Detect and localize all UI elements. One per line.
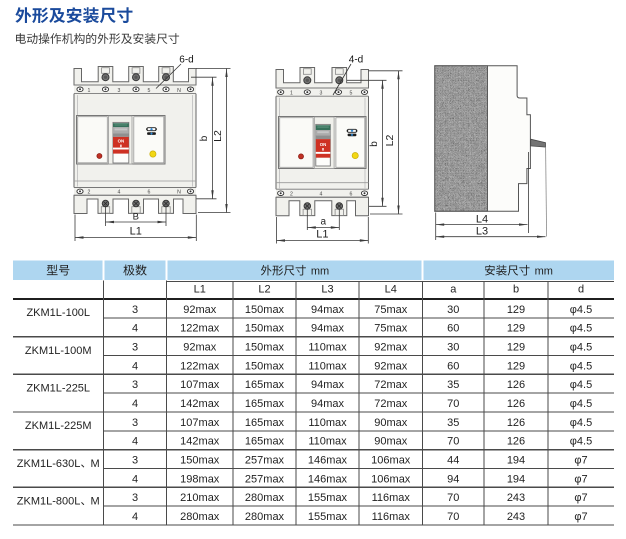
svg-text:90max: 90max <box>374 417 408 429</box>
svg-text:M: M <box>91 496 100 508</box>
svg-text:φ7: φ7 <box>574 473 587 485</box>
svg-text:1: 1 <box>88 88 91 94</box>
svg-text:75max: 75max <box>374 323 408 335</box>
svg-text:122max: 122max <box>180 360 220 372</box>
svg-text:129: 129 <box>507 304 525 316</box>
svg-text:150max: 150max <box>245 304 285 316</box>
svg-text:142max: 142max <box>180 436 220 448</box>
svg-text:70: 70 <box>447 398 459 410</box>
svg-text:94: 94 <box>447 473 459 485</box>
svg-text:L1: L1 <box>130 225 142 237</box>
svg-text:4: 4 <box>132 511 138 523</box>
svg-text:L4: L4 <box>385 283 397 295</box>
svg-text:φ7: φ7 <box>574 455 587 467</box>
svg-text:72max: 72max <box>374 379 408 391</box>
svg-text:94max: 94max <box>311 304 345 316</box>
svg-text:φ4.5: φ4.5 <box>570 379 592 391</box>
svg-text:ZKM1L-800L: ZKM1L-800L <box>17 496 81 508</box>
svg-text:194: 194 <box>507 473 525 485</box>
svg-text:243: 243 <box>507 492 525 504</box>
svg-text:165max: 165max <box>245 379 285 391</box>
svg-text:107max: 107max <box>180 379 220 391</box>
svg-text:60: 60 <box>447 323 459 335</box>
svg-text:146max: 146max <box>308 473 348 485</box>
svg-text:5: 5 <box>350 91 353 97</box>
svg-text:126: 126 <box>507 417 525 429</box>
svg-text:150max: 150max <box>180 455 220 467</box>
svg-text:b: b <box>199 135 210 141</box>
svg-text:3: 3 <box>132 342 138 354</box>
svg-text:280max: 280max <box>245 492 285 504</box>
svg-text:a: a <box>321 217 327 228</box>
svg-text:110max: 110max <box>308 360 347 372</box>
svg-text:4: 4 <box>132 473 138 485</box>
svg-text:5: 5 <box>148 88 151 94</box>
svg-text:L3: L3 <box>321 283 333 295</box>
svg-text:146max: 146max <box>308 455 348 467</box>
svg-text:94max: 94max <box>311 398 345 410</box>
svg-text:4: 4 <box>132 323 138 335</box>
svg-text:φ4.5: φ4.5 <box>570 304 592 316</box>
svg-text:B: B <box>133 211 139 222</box>
svg-text:3: 3 <box>132 304 138 316</box>
svg-text:92max: 92max <box>183 304 217 316</box>
svg-text:129: 129 <box>507 323 525 335</box>
svg-text:60: 60 <box>447 360 459 372</box>
svg-text:N: N <box>177 88 181 94</box>
svg-text:129: 129 <box>507 342 525 354</box>
svg-text:165max: 165max <box>245 436 285 448</box>
svg-text:L1: L1 <box>194 283 206 295</box>
svg-text:30: 30 <box>447 304 459 316</box>
svg-text:257max: 257max <box>245 473 285 485</box>
svg-text:L4: L4 <box>476 213 488 225</box>
svg-text:ZKM1L-100L: ZKM1L-100L <box>26 307 90 319</box>
svg-text:4: 4 <box>132 360 138 372</box>
svg-text:126: 126 <box>507 398 525 410</box>
svg-text:3: 3 <box>132 455 138 467</box>
svg-text:129: 129 <box>507 360 525 372</box>
svg-text:3: 3 <box>132 417 138 429</box>
svg-text:φ4.5: φ4.5 <box>570 436 592 448</box>
svg-text:142max: 142max <box>180 398 220 410</box>
svg-text:φ7: φ7 <box>574 511 587 523</box>
svg-text:155max: 155max <box>308 492 348 504</box>
svg-text:72max: 72max <box>374 398 408 410</box>
svg-text:70: 70 <box>447 511 459 523</box>
svg-text:3: 3 <box>118 88 121 94</box>
svg-text:92max: 92max <box>183 342 217 354</box>
svg-text:φ4.5: φ4.5 <box>570 360 592 372</box>
svg-text:110max: 110max <box>308 342 347 354</box>
svg-text:70: 70 <box>447 436 459 448</box>
svg-text:116max: 116max <box>372 492 411 504</box>
svg-text:280max: 280max <box>245 511 285 523</box>
svg-text:150max: 150max <box>245 342 285 354</box>
svg-text:150max: 150max <box>245 360 285 372</box>
svg-text:2: 2 <box>88 190 91 196</box>
svg-text:ZKM1L-225M: ZKM1L-225M <box>25 420 92 432</box>
svg-text:L2: L2 <box>384 135 396 147</box>
svg-text:155max: 155max <box>308 511 348 523</box>
svg-text:44: 44 <box>447 455 459 467</box>
svg-text:ZKM1L-225L: ZKM1L-225L <box>26 383 90 395</box>
svg-text:75max: 75max <box>374 304 408 316</box>
svg-text:165max: 165max <box>245 417 285 429</box>
svg-text:35: 35 <box>447 417 459 429</box>
svg-text:110max: 110max <box>308 417 347 429</box>
svg-text:110max: 110max <box>308 436 347 448</box>
svg-text:92max: 92max <box>374 360 408 372</box>
svg-text:mm: mm <box>311 266 329 278</box>
svg-text:b: b <box>369 141 380 147</box>
svg-text:φ4.5: φ4.5 <box>570 398 592 410</box>
svg-text:d: d <box>578 283 584 295</box>
svg-text:198max: 198max <box>180 473 220 485</box>
svg-text:107max: 107max <box>180 417 220 429</box>
svg-text:165max: 165max <box>245 398 285 410</box>
svg-text:b: b <box>513 283 519 295</box>
svg-text:4: 4 <box>118 190 121 196</box>
svg-text:3: 3 <box>132 379 138 391</box>
svg-text:30: 30 <box>447 342 459 354</box>
svg-text:35: 35 <box>447 379 459 391</box>
svg-text:a: a <box>450 283 457 295</box>
svg-text:mm: mm <box>535 266 553 278</box>
svg-text:106max: 106max <box>371 473 411 485</box>
svg-text:φ7: φ7 <box>574 492 587 504</box>
svg-text:ON: ON <box>320 142 327 147</box>
svg-text:ON: ON <box>118 139 125 144</box>
svg-text:94max: 94max <box>311 323 345 335</box>
svg-text:70: 70 <box>447 492 459 504</box>
svg-text:L1: L1 <box>316 228 328 240</box>
svg-text:92max: 92max <box>374 342 408 354</box>
svg-text:4-d: 4-d <box>349 55 363 66</box>
svg-text:126: 126 <box>507 436 525 448</box>
svg-text:257max: 257max <box>245 455 285 467</box>
svg-text:4: 4 <box>132 436 138 448</box>
svg-text:N: N <box>177 190 181 196</box>
svg-text:L3: L3 <box>476 226 488 238</box>
svg-text:106max: 106max <box>371 455 411 467</box>
svg-text:L2: L2 <box>212 130 224 142</box>
svg-text:L2: L2 <box>258 283 270 295</box>
svg-text:ZKM1L-630L: ZKM1L-630L <box>17 458 81 470</box>
svg-text:194: 194 <box>507 455 525 467</box>
svg-text:3: 3 <box>132 492 138 504</box>
svg-text:150max: 150max <box>245 323 285 335</box>
svg-text:3: 3 <box>320 91 323 97</box>
svg-text:4: 4 <box>132 398 138 410</box>
svg-text:243: 243 <box>507 511 525 523</box>
svg-text:94max: 94max <box>311 379 345 391</box>
svg-text:280max: 280max <box>180 511 220 523</box>
svg-text:6: 6 <box>148 190 151 196</box>
svg-text:210max: 210max <box>180 492 220 504</box>
svg-text:φ4.5: φ4.5 <box>570 417 592 429</box>
svg-text:φ4.5: φ4.5 <box>570 342 592 354</box>
svg-text:116max: 116max <box>372 511 411 523</box>
svg-text:1: 1 <box>290 91 293 97</box>
svg-text:90max: 90max <box>374 436 408 448</box>
svg-text:122max: 122max <box>180 323 220 335</box>
svg-text:126: 126 <box>507 379 525 391</box>
svg-text:M: M <box>91 458 100 470</box>
svg-text:φ4.5: φ4.5 <box>570 323 592 335</box>
svg-text:ZKM1L-100M: ZKM1L-100M <box>25 345 92 357</box>
svg-text:6-d: 6-d <box>179 55 193 66</box>
